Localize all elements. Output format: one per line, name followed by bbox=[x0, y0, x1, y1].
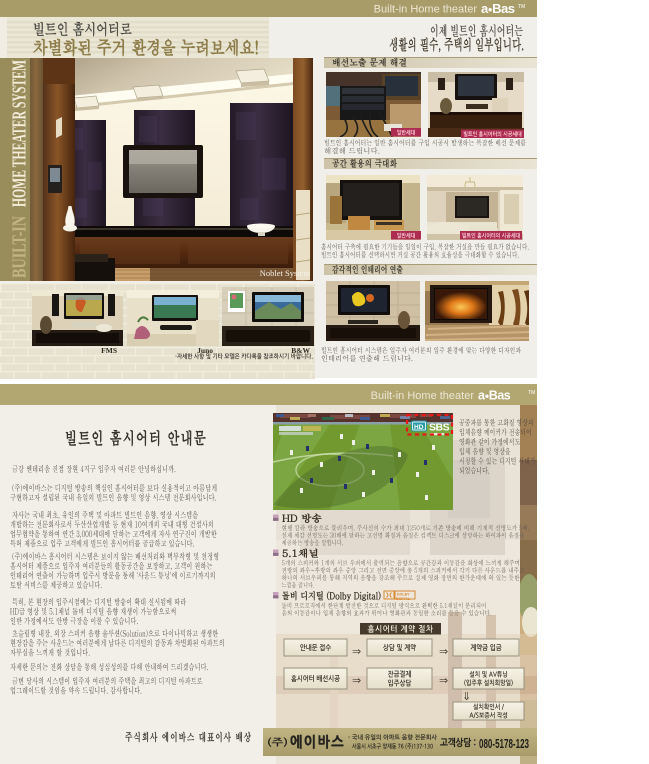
svg-text:TM: TM bbox=[528, 390, 535, 396]
svg-text:080-5178-123: 080-5178-123 bbox=[479, 736, 529, 751]
svg-text:Noblet System: Noblet System bbox=[260, 268, 311, 278]
svg-text:Built-in Home theater: Built-in Home theater bbox=[374, 4, 478, 16]
svg-text:Built-in Home theater: Built-in Home theater bbox=[371, 390, 475, 402]
svg-text:HD: HD bbox=[414, 424, 424, 431]
svg-text:SBS: SBS bbox=[429, 422, 450, 434]
svg-text:⇓: ⇓ bbox=[462, 691, 471, 703]
svg-text:BUILT-IN: BUILT-IN bbox=[9, 216, 31, 278]
svg-text:Juno: Juno bbox=[197, 346, 213, 355]
svg-text:FMS: FMS bbox=[101, 346, 117, 355]
svg-text:HOME THEATER SYSTEM: HOME THEATER SYSTEM bbox=[9, 60, 31, 207]
svg-text:⇒: ⇒ bbox=[439, 675, 448, 687]
svg-text:DIGITAL: DIGITAL bbox=[396, 597, 411, 601]
svg-text:⇒: ⇒ bbox=[352, 675, 361, 687]
svg-text:TM: TM bbox=[518, 4, 525, 10]
svg-text:a●Bas: a●Bas bbox=[478, 389, 511, 403]
svg-text:⇒: ⇒ bbox=[439, 646, 448, 658]
svg-text:a●Bas: a●Bas bbox=[481, 1, 515, 16]
svg-text:⇒: ⇒ bbox=[352, 646, 361, 658]
